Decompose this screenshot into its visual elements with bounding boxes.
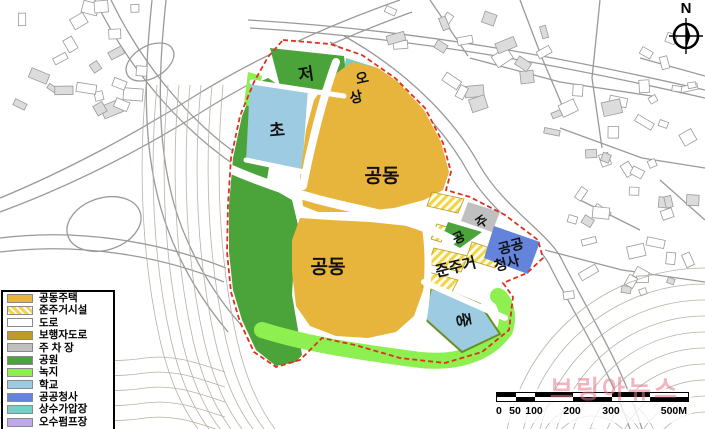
legend-label: 상수가압장 <box>39 404 87 415</box>
scale-tick: 0 <box>496 405 502 417</box>
compass-rose-icon <box>668 16 704 56</box>
legend-swatch-semi-residential <box>7 306 33 315</box>
legend-label: 공원 <box>39 355 58 366</box>
compass: N <box>668 2 704 60</box>
legend-swatch-pedestrian-road <box>7 331 33 340</box>
legend-swatch-sewage-station <box>7 418 33 427</box>
legend-swatch-school <box>7 380 33 389</box>
legend-swatch-water-station <box>7 405 33 414</box>
legend-item-parking: 주 차 장 <box>3 342 113 354</box>
legend-item-water-station: 상수가압장 <box>3 404 113 416</box>
legend-label: 주 차 장 <box>39 343 74 354</box>
legend-label: 공공청사 <box>39 392 78 403</box>
label-apartment-lower: 공동 <box>311 257 346 278</box>
scale-tick: 200 <box>563 405 581 417</box>
legend-label: 보행자도로 <box>39 330 87 341</box>
legend: 공동주택 준주거시설 도로 보행자도로 주 차 장 공원 녹지 학교 <box>1 290 115 429</box>
legend-label: 공동주택 <box>39 293 78 304</box>
watermark: 브링아뉴스 <box>550 370 680 406</box>
legend-item-road: 도로 <box>3 317 113 329</box>
legend-swatch-park <box>7 356 33 365</box>
legend-label: 오수펌프장 <box>39 417 87 428</box>
scale-bar-labels: 0 50 100 200 300 500M <box>496 405 687 419</box>
site: 저 오 상 초 공동 공동 주 공 공공 청사 준주거 중 <box>227 40 543 367</box>
scale-tick: 100 <box>525 405 543 417</box>
legend-item-public-office: 공공청사 <box>3 391 113 403</box>
legend-swatch-public-office <box>7 393 33 402</box>
label-elementary-school: 초 <box>268 120 286 140</box>
legend-swatch-greenery <box>7 368 33 377</box>
zone-apartment-lower <box>292 218 428 338</box>
legend-swatch-road <box>7 318 33 327</box>
compass-north-label: N <box>668 2 704 16</box>
legend-item-greenery: 녹지 <box>3 366 113 378</box>
label-detention: 저 <box>297 64 315 85</box>
legend-item-pedestrian-road: 보행자도로 <box>3 329 113 341</box>
scale-tick: 50 <box>509 405 521 417</box>
legend-label: 녹지 <box>39 367 58 378</box>
legend-swatch-parking <box>7 343 33 352</box>
label-apartment-upper: 공동 <box>365 166 400 187</box>
land-use-plan-map: 저 오 상 초 공동 공동 주 공 공공 청사 준주거 중 N <box>0 0 705 429</box>
scale-tick: 500M <box>661 405 687 417</box>
legend-item-sewage-station: 오수펌프장 <box>3 416 113 428</box>
legend-item-semi-residential: 준주거시설 <box>3 304 113 316</box>
scale-tick: 300 <box>602 405 620 417</box>
legend-item-school: 학교 <box>3 379 113 391</box>
legend-label: 학교 <box>39 380 58 391</box>
legend-item-apartment: 공동주택 <box>3 292 113 304</box>
legend-item-park: 공원 <box>3 354 113 366</box>
legend-swatch-apartment <box>7 294 33 303</box>
legend-label: 도로 <box>39 318 58 329</box>
legend-label: 준주거시설 <box>39 305 87 316</box>
